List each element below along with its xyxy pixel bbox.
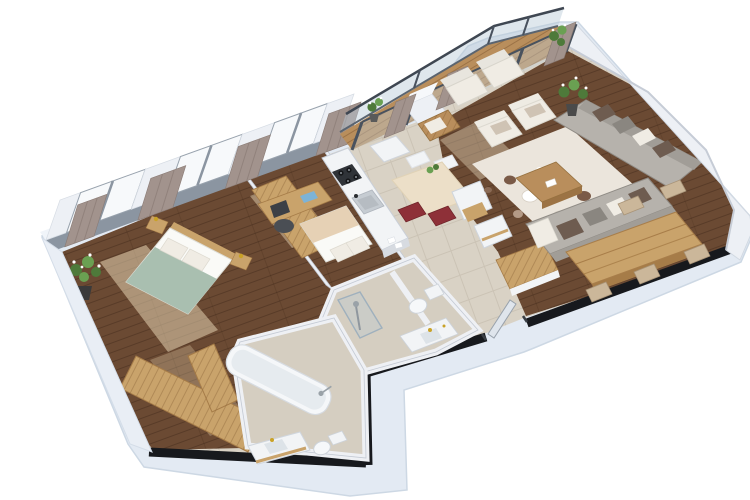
office-chair-seat	[274, 219, 294, 233]
bedside-lamp	[154, 217, 158, 221]
floor-plan-render	[0, 0, 750, 500]
table-plant	[427, 167, 434, 174]
table-plant	[433, 164, 439, 170]
gold-faucet	[270, 438, 274, 442]
floor-plan-render-page	[0, 0, 750, 500]
shower-head	[353, 301, 359, 307]
gold-faucet	[428, 328, 432, 332]
kitchen-faucet	[354, 194, 358, 198]
gold-accessory	[443, 325, 446, 328]
bedside-lamp	[239, 254, 243, 258]
